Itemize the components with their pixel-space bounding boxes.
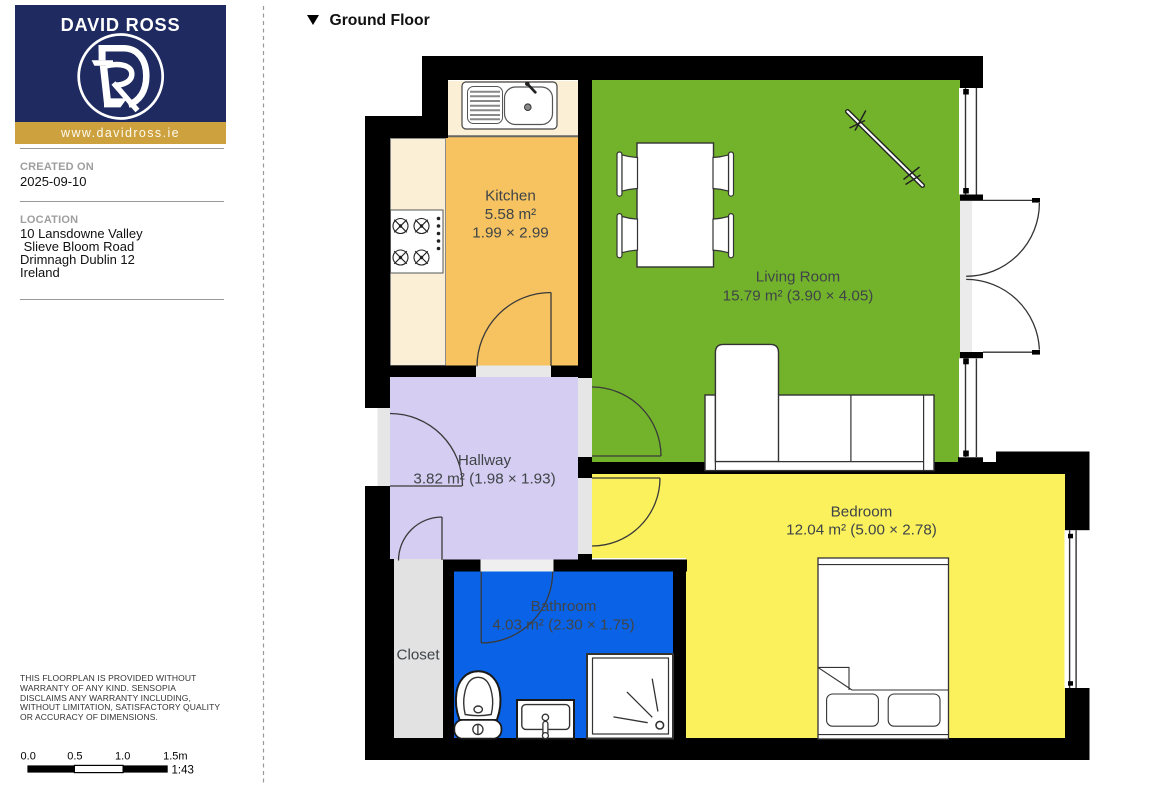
svg-text:Hallway: Hallway bbox=[458, 452, 512, 469]
svg-text:Bedroom: Bedroom bbox=[831, 503, 893, 520]
svg-text:5.58 m²: 5.58 m² bbox=[485, 206, 537, 223]
svg-text:12.04 m² (5.00 × 2.78): 12.04 m² (5.00 × 2.78) bbox=[786, 522, 937, 539]
svg-text:Kitchen: Kitchen bbox=[485, 188, 536, 205]
svg-text:Living Room: Living Room bbox=[756, 269, 840, 286]
svg-text:Closet: Closet bbox=[397, 647, 441, 664]
svg-text:15.79 m² (3.90 × 4.05): 15.79 m² (3.90 × 4.05) bbox=[723, 287, 874, 304]
svg-text:Bathroom: Bathroom bbox=[531, 598, 597, 615]
svg-text:1.99 × 2.99: 1.99 × 2.99 bbox=[472, 225, 548, 242]
svg-text:3.82 m² (1.98 × 1.93): 3.82 m² (1.98 × 1.93) bbox=[413, 470, 555, 487]
svg-text:4.03 m² (2.30 × 1.75): 4.03 m² (2.30 × 1.75) bbox=[492, 617, 634, 634]
